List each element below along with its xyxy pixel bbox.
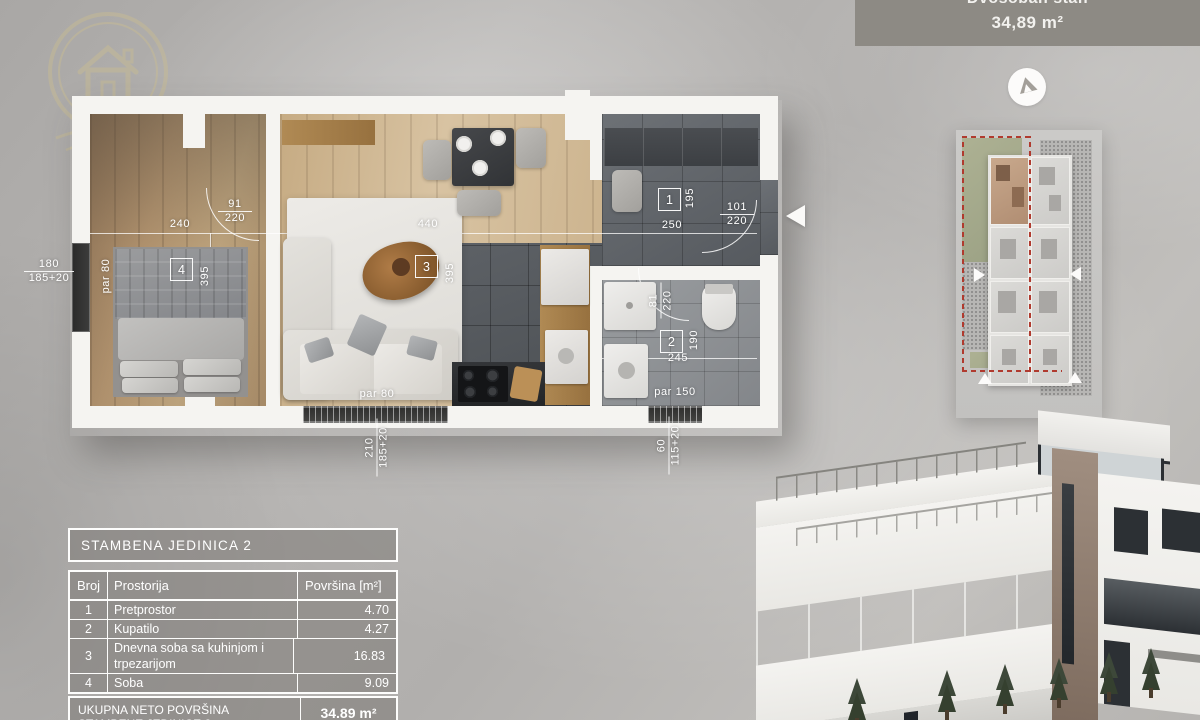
site-unit-highlighted — [990, 157, 1029, 225]
row-number: 4 — [70, 674, 108, 692]
dim-value: 60 — [656, 417, 669, 475]
row-number: 2 — [70, 620, 108, 638]
dim-value: 185+20 — [377, 419, 391, 477]
row-area-value: 16.83 — [294, 639, 392, 673]
site-split-line — [1029, 136, 1031, 372]
dim-value: 220 — [720, 214, 754, 228]
site-unit — [990, 281, 1029, 333]
wall-bath-left — [590, 266, 602, 406]
plate — [456, 136, 472, 152]
cutting-board — [509, 366, 542, 402]
room-marker-bath: 2 — [660, 330, 683, 353]
table-row: 1 Pretprostor 4.70 — [70, 599, 396, 619]
dim-bedroom-door: 91 220 — [218, 198, 252, 225]
toilet-tank — [705, 284, 733, 294]
dim-bedroom-width: 240 — [158, 218, 202, 230]
table-row: 2 Kupatilo 4.27 — [70, 619, 396, 638]
table-row: 4 Soba 9.09 — [70, 673, 396, 692]
hall-armchair — [612, 170, 642, 212]
dim-value: 81 — [648, 283, 661, 319]
dim-value: 220 — [218, 211, 252, 225]
wall-step-top — [565, 90, 590, 140]
page: Dvosoban stan 34,89 m² — [0, 0, 1200, 720]
stove-burner — [463, 370, 474, 381]
dim-hall-height: 195 — [684, 175, 696, 221]
wall-bedroom-living-bottom — [266, 248, 280, 406]
dim-entry-door: 101 220 — [720, 201, 754, 228]
table-total-row: UKUPNA NETO POVRŠINA STAMBENE JEDINICE 2… — [68, 696, 398, 720]
dim-value: 220 — [661, 283, 675, 319]
bed-pillow — [120, 361, 178, 377]
window-bedroom-left — [72, 243, 90, 332]
row-room-name: Soba — [108, 674, 298, 692]
wall-hall-bath-left — [590, 266, 635, 280]
dim-value: 210 — [364, 419, 377, 477]
unit-area-table: Broj Prostorija Površina [m²] 1 Pretpros… — [68, 570, 398, 694]
dim-bedroom-height: 395 — [199, 253, 211, 299]
site-unit — [1031, 227, 1070, 279]
dim-window-bath: 60 115+20 — [656, 417, 683, 475]
dim-window-living: 210 185+20 — [364, 419, 391, 477]
site-arrow-bottom-left-icon — [978, 373, 992, 384]
site-unit — [990, 335, 1029, 384]
row-area-value: 4.27 — [298, 620, 396, 638]
unit-table-title: STAMBENA JEDINICA 2 — [68, 528, 398, 562]
dining-chair — [423, 140, 451, 180]
sideboard — [282, 120, 375, 145]
row-number: 1 — [70, 601, 108, 619]
dim-value: 185+20 — [24, 271, 74, 285]
dim-window-left: 180 185+20 — [24, 258, 74, 285]
stove-burner — [486, 369, 499, 382]
bed-pillow — [184, 377, 240, 392]
building-render — [748, 452, 1200, 720]
row-number: 3 — [70, 639, 108, 673]
ground-window — [904, 711, 918, 720]
site-unit — [1031, 281, 1070, 333]
bed-pillow — [122, 378, 178, 393]
north-arrow-notch — [1022, 83, 1032, 93]
site-boundary-bottom — [962, 370, 1062, 372]
fridge — [541, 249, 589, 305]
entrance-arrow-icon — [786, 205, 805, 227]
entry-door-opening — [760, 180, 778, 255]
plate — [490, 130, 506, 146]
core-window-slit — [1062, 483, 1074, 664]
unit-area-value: 34,89 m² — [855, 13, 1200, 33]
wall-hall-bath-right — [692, 266, 760, 280]
room-marker-hall: 1 — [658, 188, 681, 211]
dim-bath-width: 245 — [656, 352, 700, 364]
unit-type-title: Dvosoban stan — [855, 0, 1200, 8]
table-header-prostorija: Prostorija — [108, 572, 298, 599]
table-header-povrsina: Površina [m²] — [298, 572, 396, 599]
total-area-value: 34.89 m² — [301, 698, 396, 720]
plate — [472, 160, 488, 176]
row-room-name: Pretprostor — [108, 601, 298, 619]
site-unit — [1031, 157, 1070, 225]
stove-burner — [487, 386, 498, 397]
dim-value: 91 — [218, 198, 252, 211]
right-window — [1162, 509, 1200, 554]
right-window — [1114, 507, 1148, 555]
row-room-name: Kupatilo — [108, 620, 298, 638]
site-boundary-left — [962, 136, 964, 372]
site-arrow-right-icon — [1070, 267, 1081, 281]
site-unit — [1031, 335, 1070, 384]
wall-bedroom-living-top — [266, 114, 280, 180]
dishwasher-door — [558, 348, 574, 364]
site-boundary-top — [962, 136, 1030, 138]
shower-drain — [626, 302, 633, 309]
dim-value: 115+20 — [669, 417, 683, 475]
room-marker-bedroom: 4 — [170, 258, 193, 281]
table-header-row: Broj Prostorija Površina [m²] — [70, 572, 396, 599]
wall-living-hall-stub — [590, 114, 602, 180]
room-marker-living: 3 — [415, 255, 438, 278]
wardrobe — [604, 128, 758, 166]
unit-banner: Dvosoban stan 34,89 m² — [855, 0, 1200, 46]
site-arrow-bottom-right-icon — [1068, 372, 1082, 383]
window-left-label: par 80 — [100, 251, 112, 301]
coffee-table-bowl — [392, 258, 410, 276]
dim-value: 180 — [24, 258, 74, 271]
table-row: 3 Dnevna soba sa kuhinjom i trpezarijom … — [70, 638, 396, 673]
dining-chair — [457, 190, 501, 216]
site-arrow-left-icon — [974, 268, 985, 282]
bed-sheet — [118, 318, 244, 360]
window-living-label: par 80 — [350, 388, 404, 400]
dim-hall-width: 250 — [650, 219, 694, 231]
wall-pilaster-top — [183, 96, 205, 148]
dim-living-height: 395 — [444, 250, 456, 296]
total-label: UKUPNA NETO POVRŠINA STAMBENE JEDINICE 2 — [70, 698, 301, 720]
bed-pillow — [183, 359, 241, 375]
site-unit — [990, 227, 1029, 279]
dim-value: 101 — [720, 201, 754, 214]
row-room-name: Dnevna soba sa kuhinjom i trpezarijom — [108, 639, 294, 673]
north-arrow-icon — [1008, 68, 1046, 106]
dining-chair — [516, 128, 546, 168]
washer-door — [618, 362, 635, 379]
row-area-value: 9.09 — [298, 674, 396, 692]
table-header-broj: Broj — [70, 572, 108, 599]
dim-bath-door: 81 220 — [648, 283, 675, 319]
stove-burner — [464, 386, 476, 398]
window-bath-label: par 150 — [645, 386, 705, 398]
row-area-value: 4.70 — [298, 601, 396, 619]
dim-living-width: 440 — [406, 218, 450, 230]
building-right-facade — [1052, 452, 1200, 720]
site-plan — [956, 130, 1102, 418]
